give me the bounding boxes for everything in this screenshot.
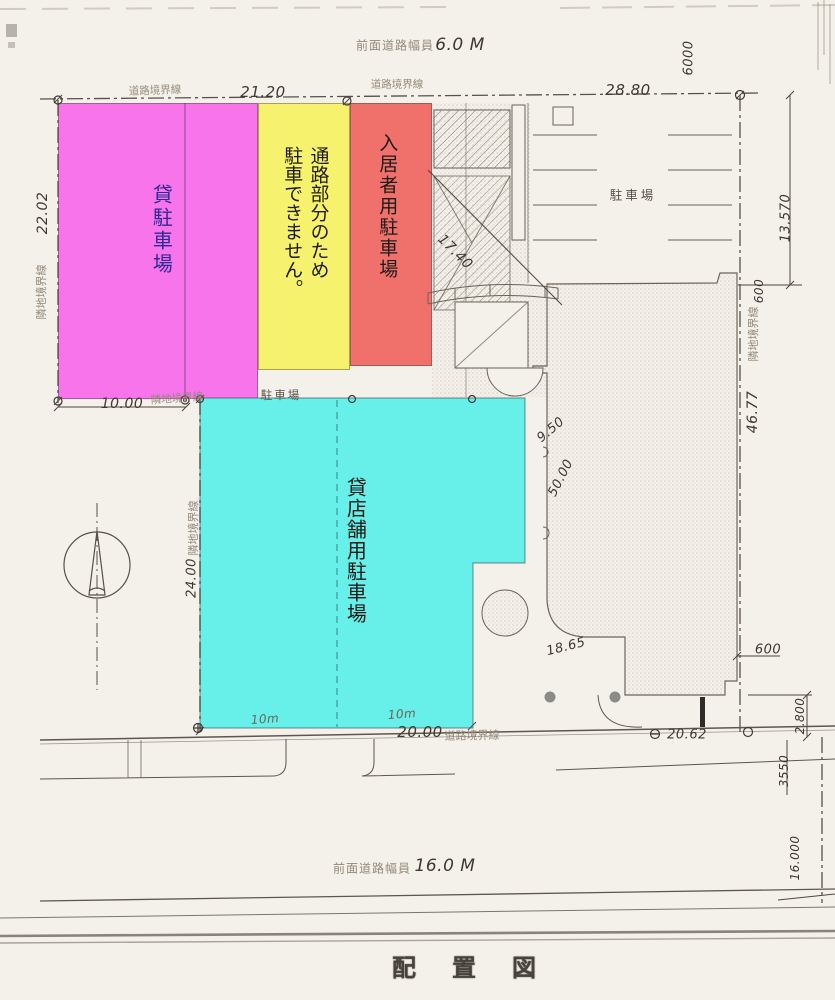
site-plan-page: 前面道路幅員 6.0 M 6000 道路境界線 道路境界線 21.20 28.8… — [0, 0, 835, 1000]
boundary-label-top-left: 道路境界線 — [129, 82, 182, 99]
dim-24-00: 24.00 — [185, 558, 200, 598]
boundary-label-cyan-left: 隣地境界線 — [185, 501, 201, 556]
dim-3550: 3550 — [777, 755, 791, 788]
area-passage-line2: 駐車できません。 — [281, 146, 302, 298]
dim-21-20: 21.20 — [240, 83, 285, 101]
dim-10m-a: 10m — [250, 711, 279, 727]
area-passage-label: 通路部分のため 駐車できません。 — [281, 146, 329, 298]
dim-600-bottom: 600 — [755, 643, 781, 658]
boundary-label-top-mid: 道路境界線 — [371, 77, 424, 92]
bottom-road-width-label: 前面道路幅員 — [333, 860, 411, 877]
dim-10m-b: 10m — [387, 706, 416, 722]
boundary-label-bottom: 道路境界線 — [444, 727, 499, 744]
parking-lot-label: 駐車場 — [610, 185, 657, 204]
area-passage-line1: 通路部分のため — [307, 146, 328, 298]
dim-13-570: 13.570 — [779, 194, 794, 243]
dim-16-000: 16.000 — [788, 836, 802, 881]
dim-20-62: 20.62 — [667, 728, 707, 743]
area-store-label: 貸店舗用駐車場 — [344, 477, 366, 624]
dim-46-77: 46.77 — [745, 391, 761, 434]
dim-20-00: 20.00 — [397, 723, 442, 741]
top-road-width-value: 6.0 M — [435, 35, 485, 55]
bottom-road-width-value: 16.0 M — [415, 856, 476, 876]
boundary-label-right: 隣地境界線 — [745, 307, 761, 362]
top-road-width-label: 前面道路幅員 — [356, 37, 434, 54]
dim-600-top: 600 — [752, 279, 766, 303]
dim-10-00: 10.00 — [101, 396, 144, 412]
page-title: 配置図 — [392, 948, 572, 983]
north-arrow-icon — [64, 503, 130, 690]
site-plan-linework — [0, 0, 835, 1000]
boundary-label-left: 隣地境界線 — [33, 265, 49, 320]
dim-6000: 6000 — [682, 40, 697, 75]
dim-22-02: 22.02 — [35, 192, 51, 235]
dim-28-80: 28.80 — [605, 81, 650, 99]
area-resident-label: 入居者用駐車場 — [376, 133, 397, 280]
dim-2-800: 2.800 — [793, 698, 807, 735]
parking-small-label: 駐車場 — [261, 387, 302, 403]
area-rental-label: 貸駐車場 — [150, 184, 172, 276]
